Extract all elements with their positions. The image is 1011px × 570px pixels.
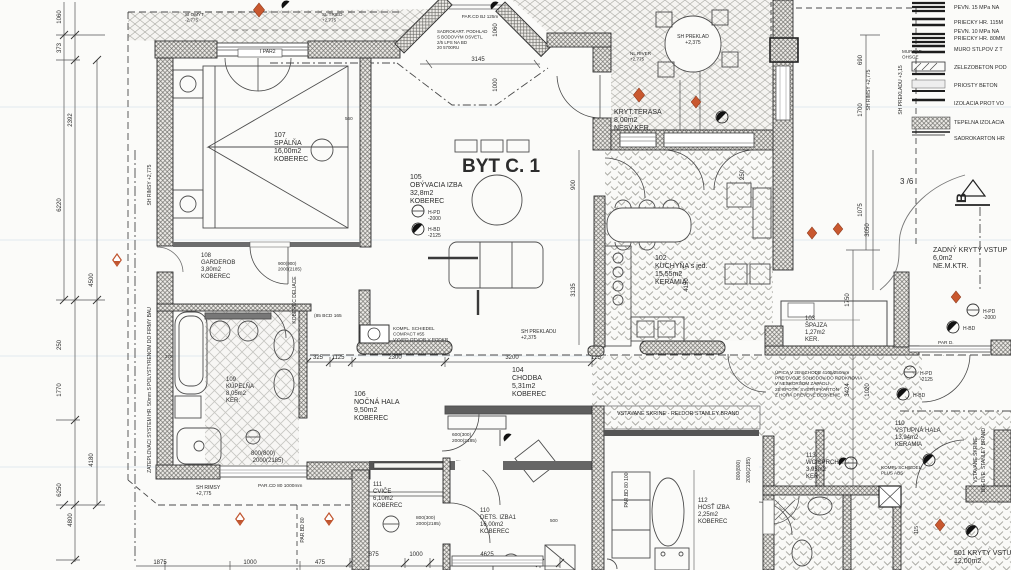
svg-text:1000: 1000 (243, 560, 257, 566)
svg-text:I PAR2: I PAR2 (260, 49, 276, 55)
svg-text:1020: 1020 (865, 383, 871, 397)
svg-text:H-BD: H-BD (913, 393, 926, 399)
svg-text:1770: 1770 (57, 383, 63, 397)
svg-text:6220: 6220 (57, 198, 63, 212)
svg-text:ZELEZOBETON POD: ZELEZOBETON POD (954, 65, 1007, 71)
svg-text:115: 115 (914, 526, 920, 534)
svg-text:800(800): 800(800) (251, 451, 275, 457)
svg-text:H-PD-2000: H-PD-2000 (428, 210, 441, 222)
svg-text:4180: 4180 (89, 453, 95, 467)
svg-text:800(800): 800(800) (736, 460, 742, 480)
svg-text:SADROKARTON HR: SADROKARTON HR (954, 136, 1005, 142)
svg-text:1060: 1060 (57, 10, 63, 24)
svg-text:H-PD-2000: H-PD-2000 (983, 309, 996, 321)
svg-text:VSTAVANE SKRINE: VSTAVANE SKRINE (973, 437, 979, 483)
svg-text:1700: 1700 (858, 103, 864, 117)
svg-text:1125: 1125 (332, 355, 346, 361)
svg-text:PAR.BD 80: PAR.BD 80 (300, 517, 306, 542)
svg-text:1000: 1000 (493, 78, 499, 92)
svg-text:TEPELNA IZOLACIA: TEPELNA IZOLACIA (954, 120, 1005, 126)
svg-text:900: 900 (571, 179, 577, 190)
svg-text:PRIOSTY BETON: PRIOSTY BETON (954, 83, 998, 89)
svg-text:3 /6: 3 /6 (900, 177, 914, 186)
svg-text:PEVN. 15 MPa NA: PEVN. 15 MPa NA (954, 5, 1000, 11)
svg-text:H-PD-2125: H-PD-2125 (920, 371, 933, 383)
svg-text:373: 373 (57, 42, 63, 53)
svg-text:4500: 4500 (89, 273, 95, 287)
svg-text:270: 270 (165, 354, 173, 359)
svg-text:3145: 3145 (471, 57, 485, 63)
svg-text:475: 475 (315, 560, 326, 566)
svg-text:6250: 6250 (57, 483, 63, 497)
svg-text:PRIECKY HR. 80MM: PRIECKY HR. 80MM (954, 36, 1005, 42)
svg-text:560: 560 (345, 116, 353, 121)
svg-text:PAR.BD 80 100: PAR.BD 80 100 (624, 472, 630, 507)
svg-text:H-BD-2125: H-BD-2125 (428, 227, 441, 239)
svg-text:1750: 1750 (845, 293, 851, 307)
svg-text:325: 325 (313, 355, 324, 361)
svg-text:2300: 2300 (388, 355, 402, 361)
svg-text:PRIECKY HR. 115M: PRIECKY HR. 115M (954, 20, 1003, 26)
svg-text:H-BD: H-BD (963, 326, 976, 332)
svg-text:B: B (953, 193, 969, 203)
svg-text:IZOLACIA PROT VO: IZOLACIA PROT VO (954, 101, 1004, 107)
svg-text:PEVN. 10 MPa NA: PEVN. 10 MPa NA (954, 29, 1000, 35)
svg-text:250: 250 (740, 169, 746, 180)
svg-text:4800: 4800 (68, 513, 74, 527)
svg-text:2000(2185): 2000(2185) (253, 458, 284, 464)
svg-text:(85 BCD 165: (85 BCD 165 (314, 313, 342, 319)
svg-text:MURO STLPOV Z T: MURO STLPOV Z T (954, 47, 1003, 53)
svg-text:PAR D.: PAR D. (938, 340, 954, 346)
svg-text:BYT C. 1: BYT C. 1 (462, 156, 541, 177)
svg-text:VSTAVANÉ SKRINE - RELDOR ST: VSTAVANÉ SKRINE - RELDOR STANLEY BRAND (617, 410, 739, 417)
svg-text:250: 250 (57, 339, 63, 350)
svg-text:3424: 3424 (845, 383, 851, 397)
svg-text:PAR.CD BJ 125m: PAR.CD BJ 125m (462, 14, 499, 19)
svg-text:1075: 1075 (858, 203, 864, 217)
svg-text:500: 500 (550, 518, 558, 523)
svg-text:KOBEREC DELIACE: KOBEREC DELIACE (292, 276, 298, 324)
svg-text:3200: 3200 (505, 355, 519, 361)
svg-text:2392: 2392 (68, 113, 74, 127)
svg-text:ZATEPLOVACI SYSTEM HR. 50mm S: ZATEPLOVACI SYSTEM HR. 50mm S POLYSTYREN… (147, 307, 153, 473)
svg-text:SH RIMSY +2,775: SH RIMSY +2,775 (147, 164, 153, 205)
svg-text:690: 690 (858, 54, 864, 65)
svg-text:1875: 1875 (153, 560, 167, 566)
svg-text:2000(2185): 2000(2185) (746, 457, 752, 483)
svg-text:1060: 1060 (493, 23, 499, 37)
svg-text:1000: 1000 (409, 552, 423, 558)
svg-text:BIG DVE. STANLEY BRAND: BIG DVE. STANLEY BRAND (981, 427, 987, 492)
svg-text:3135: 3135 (571, 283, 577, 297)
svg-text:3050: 3050 (865, 223, 871, 237)
svg-text:SH RIMSY +2,775: SH RIMSY +2,775 (866, 69, 872, 110)
svg-text:SH PREKLADU +3,15: SH PREKLADU +3,15 (898, 65, 904, 115)
svg-text:PAR.CD 80 1000mm: PAR.CD 80 1000mm (258, 483, 302, 489)
